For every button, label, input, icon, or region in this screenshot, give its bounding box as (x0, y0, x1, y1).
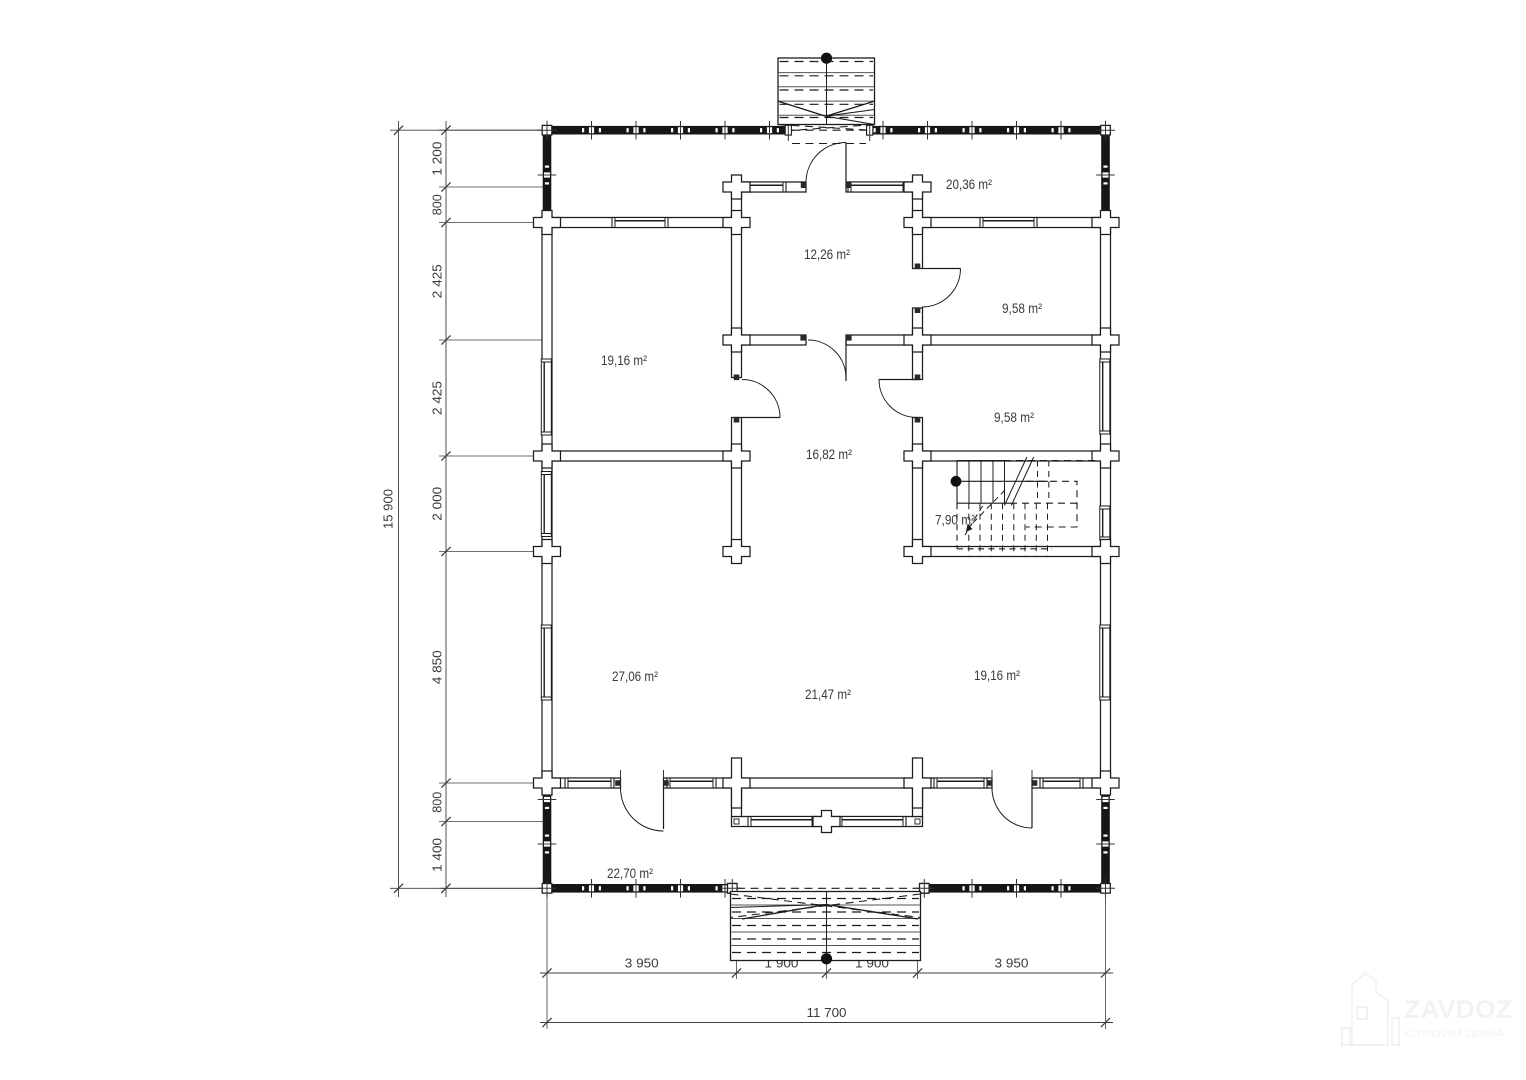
svg-text:22,70 m²: 22,70 m² (607, 866, 653, 881)
svg-text:9,58 m²: 9,58 m² (994, 410, 1034, 425)
svg-text:ZAVDOZ: ZAVDOZ (1404, 996, 1512, 1024)
svg-text:2 425: 2 425 (430, 381, 445, 415)
svg-text:21,47 m²: 21,47 m² (805, 687, 851, 702)
svg-text:1 200: 1 200 (430, 142, 445, 176)
svg-text:19,16 m²: 19,16 m² (601, 353, 647, 368)
svg-text:12,26 m²: 12,26 m² (804, 247, 850, 262)
svg-text:2 000: 2 000 (430, 487, 445, 521)
svg-text:1 400: 1 400 (430, 838, 445, 872)
svg-text:15 900: 15 900 (381, 489, 396, 529)
svg-text:3 950: 3 950 (995, 956, 1029, 971)
svg-text:СТРОИМ ДОМА: СТРОИМ ДОМА (1405, 1029, 1505, 1040)
svg-text:20,36 m²: 20,36 m² (946, 177, 992, 192)
svg-text:3 950: 3 950 (625, 956, 659, 971)
svg-text:4 850: 4 850 (430, 650, 445, 684)
svg-text:16,82 m²: 16,82 m² (806, 447, 852, 462)
svg-text:11 700: 11 700 (807, 1005, 847, 1020)
svg-text:27,06 m²: 27,06 m² (612, 669, 658, 684)
svg-text:800: 800 (430, 194, 445, 215)
svg-text:19,16 m²: 19,16 m² (974, 668, 1020, 683)
svg-text:9,58 m²: 9,58 m² (1002, 301, 1042, 316)
svg-text:2 425: 2 425 (430, 264, 445, 298)
svg-text:800: 800 (430, 792, 445, 813)
svg-text:7,90 m²: 7,90 m² (935, 513, 975, 528)
